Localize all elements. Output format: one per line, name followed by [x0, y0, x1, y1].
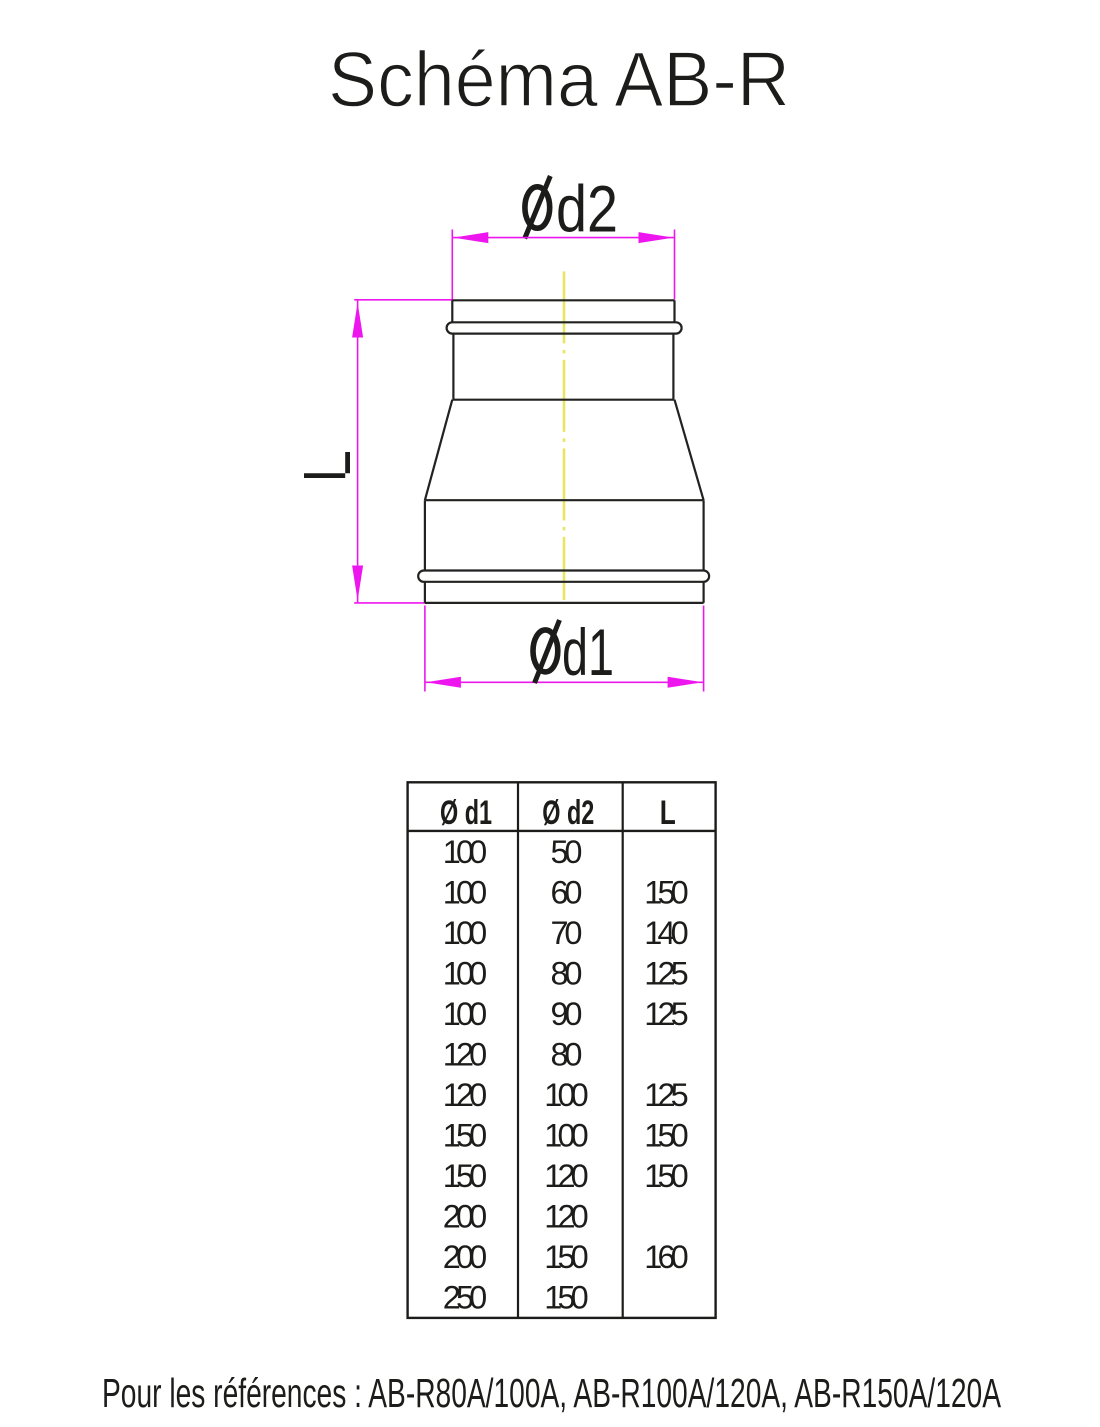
svg-text:200: 200 — [443, 1239, 488, 1275]
svg-text:d1: d1 — [562, 615, 614, 689]
svg-text:80: 80 — [551, 1036, 583, 1072]
svg-text:160: 160 — [644, 1239, 689, 1275]
svg-text:150: 150 — [644, 874, 689, 910]
svg-text:60: 60 — [551, 874, 583, 910]
svg-text:100: 100 — [443, 834, 488, 870]
svg-text:150: 150 — [443, 1117, 488, 1153]
svg-text:d2: d2 — [556, 172, 618, 246]
svg-text:125: 125 — [644, 1077, 689, 1113]
svg-text:125: 125 — [644, 955, 689, 991]
svg-text:Pour les références : AB-R80A/: Pour les références : AB-R80A/100A, AB-R… — [102, 1370, 1001, 1416]
svg-text:L: L — [660, 794, 676, 832]
svg-text:150: 150 — [443, 1158, 488, 1194]
svg-text:Schéma AB-R: Schéma AB-R — [328, 35, 790, 123]
svg-text:50: 50 — [551, 834, 583, 870]
svg-text:70: 70 — [551, 915, 583, 951]
svg-text:120: 120 — [443, 1077, 488, 1113]
svg-text:100: 100 — [544, 1077, 589, 1113]
svg-text:120: 120 — [443, 1036, 488, 1072]
svg-text:140: 140 — [644, 915, 689, 951]
svg-text:100: 100 — [544, 1117, 589, 1153]
svg-text:100: 100 — [443, 955, 488, 991]
svg-text:90: 90 — [551, 996, 583, 1032]
svg-text:100: 100 — [443, 874, 488, 910]
svg-text:200: 200 — [443, 1198, 488, 1234]
svg-text:120: 120 — [544, 1198, 589, 1234]
svg-text:150: 150 — [544, 1239, 589, 1275]
svg-text:125: 125 — [644, 996, 689, 1032]
svg-text:100: 100 — [443, 915, 488, 951]
svg-text:120: 120 — [544, 1158, 589, 1194]
svg-text:Ø d1: Ø d1 — [440, 794, 492, 832]
svg-text:Ø d2: Ø d2 — [542, 794, 594, 832]
svg-text:250: 250 — [443, 1279, 488, 1315]
svg-text:150: 150 — [544, 1279, 589, 1315]
svg-text:100: 100 — [443, 996, 488, 1032]
svg-text:150: 150 — [644, 1158, 689, 1194]
svg-text:150: 150 — [644, 1117, 689, 1153]
svg-text:80: 80 — [551, 955, 583, 991]
